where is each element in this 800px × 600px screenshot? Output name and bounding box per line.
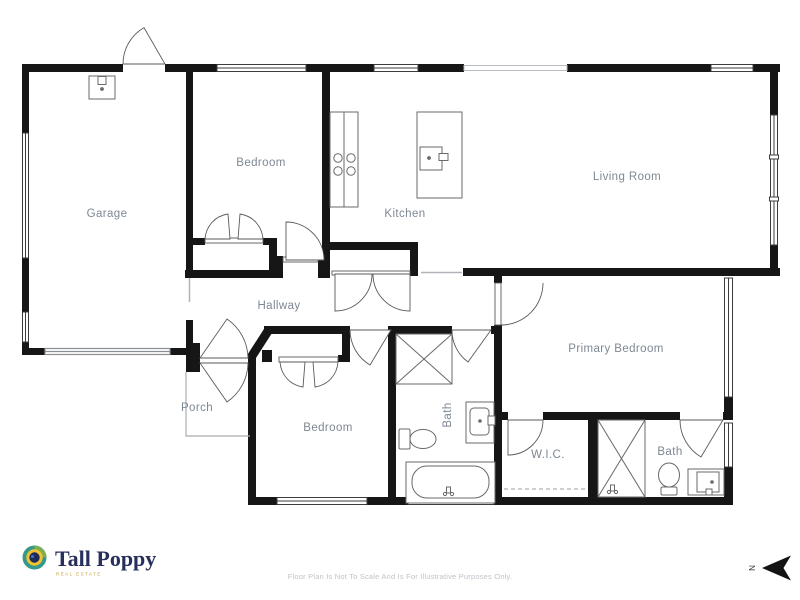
door-bath1	[452, 330, 491, 362]
door-bedroom2	[350, 330, 391, 365]
room-label-wic: W.I.C.	[531, 449, 565, 461]
toilet-bath2	[659, 463, 680, 495]
door-bedroom1-closet-left	[205, 214, 230, 239]
door-bedroom1	[286, 222, 324, 260]
opening-kitchen-living-top	[464, 66, 567, 71]
bathtub	[406, 462, 495, 503]
window-living-top	[711, 65, 753, 72]
room-label-bedroom2: Bedroom	[303, 422, 352, 434]
compass-north-label: N	[748, 565, 757, 571]
open-passages	[190, 66, 568, 303]
room-label-living-room: Living Room	[593, 171, 661, 183]
window-living-right	[770, 115, 779, 245]
window-primary-right	[725, 278, 733, 397]
window-garage-left-long	[23, 133, 29, 258]
vanity-bath1	[466, 402, 495, 443]
utility-sink	[89, 76, 115, 99]
door-bath2	[680, 420, 723, 457]
door-bedroom2-closet-left	[280, 362, 305, 387]
floor-plan-page: Garage Bedroom Kitchen Living Room Hallw…	[0, 0, 800, 600]
room-label-bedroom1: Bedroom	[236, 157, 285, 169]
room-label-kitchen: Kitchen	[384, 208, 425, 220]
door-pantry-left	[335, 274, 372, 311]
room-label-hallway: Hallway	[257, 300, 300, 312]
compass-arrow-icon	[762, 556, 791, 581]
kitchen-counter	[330, 112, 358, 207]
window-bath2-right	[725, 423, 733, 467]
brand-logo: Tall Poppy REAL ESTATE	[23, 546, 157, 577]
room-label-bath2: Bath	[657, 446, 682, 458]
window-bedroom1-top	[217, 65, 306, 72]
brand-name: Tall Poppy	[55, 546, 156, 571]
door-front-inner	[200, 319, 248, 358]
room-label-primary-bedroom: Primary Bedroom	[568, 343, 663, 355]
shower-bath1	[396, 334, 452, 384]
kitchen-island	[417, 112, 462, 198]
window-garage-left-short	[23, 312, 29, 342]
door-bedroom1-closet-right	[238, 214, 263, 239]
compass: N	[748, 556, 791, 581]
tall-poppy-logo-icon	[23, 546, 47, 570]
door-pantry-right	[373, 274, 410, 311]
window-kitchen-top	[374, 65, 418, 72]
brand-tagline: REAL ESTATE	[56, 572, 102, 577]
door-front-outer	[200, 363, 248, 402]
room-label-bath1: Bath	[442, 402, 454, 427]
garage-door	[45, 349, 170, 355]
room-label-porch: Porch	[181, 402, 213, 414]
room-label-garage: Garage	[87, 208, 128, 220]
laundry-taps	[607, 485, 617, 494]
door-garage-entry	[123, 28, 165, 64]
laundry-cupboard	[598, 420, 645, 497]
disclaimer-text: Floor Plan Is Not To Scale And Is For Il…	[288, 572, 512, 581]
door-primary-arc	[501, 283, 543, 325]
toilet-bath1	[399, 429, 436, 449]
window-bedroom2-bottom	[277, 498, 367, 505]
vanity-bath2	[688, 469, 724, 495]
door-bedroom2-closet-right	[313, 362, 338, 387]
floor-plan-drawing: Garage Bedroom Kitchen Living Room Hallw…	[0, 0, 800, 600]
